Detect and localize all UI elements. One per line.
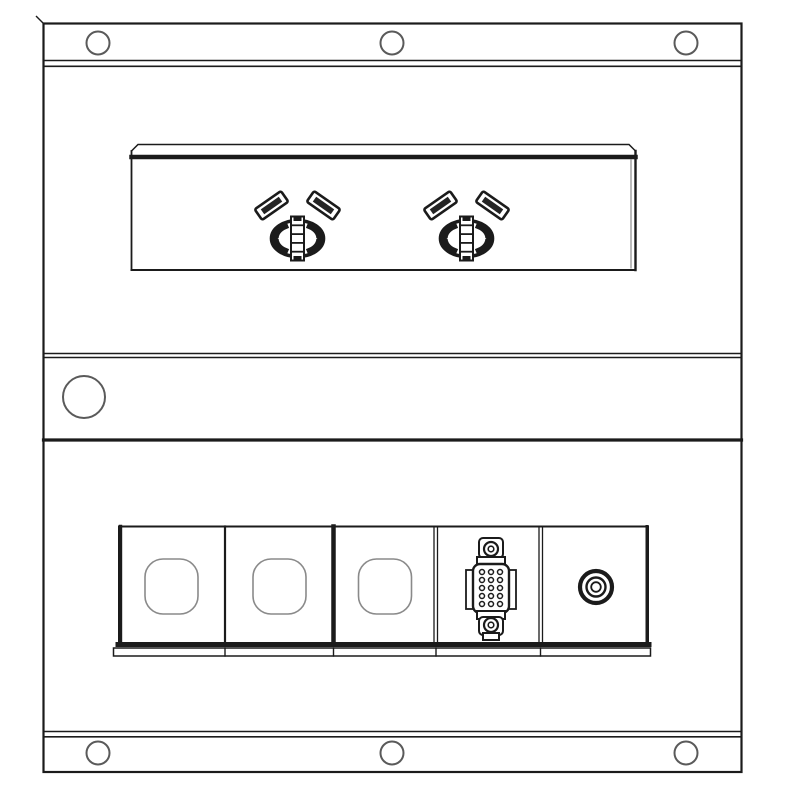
screw-hole-top-right xyxy=(675,32,698,55)
technical-drawing-canvas xyxy=(0,0,800,800)
screw-hole-top-center xyxy=(381,32,404,55)
screw-hole-top-left xyxy=(87,32,110,55)
rca-jack xyxy=(580,571,612,603)
screw-hole-bottom-left xyxy=(87,742,110,765)
module-strip xyxy=(114,527,651,657)
screw-hole-bottom-center xyxy=(381,742,404,765)
faceplate-outline xyxy=(37,17,742,773)
module-strip-lip xyxy=(114,648,651,656)
screw-hole-bottom-right xyxy=(675,742,698,765)
panel-drawing xyxy=(0,0,800,800)
side-access-hole xyxy=(63,376,105,418)
